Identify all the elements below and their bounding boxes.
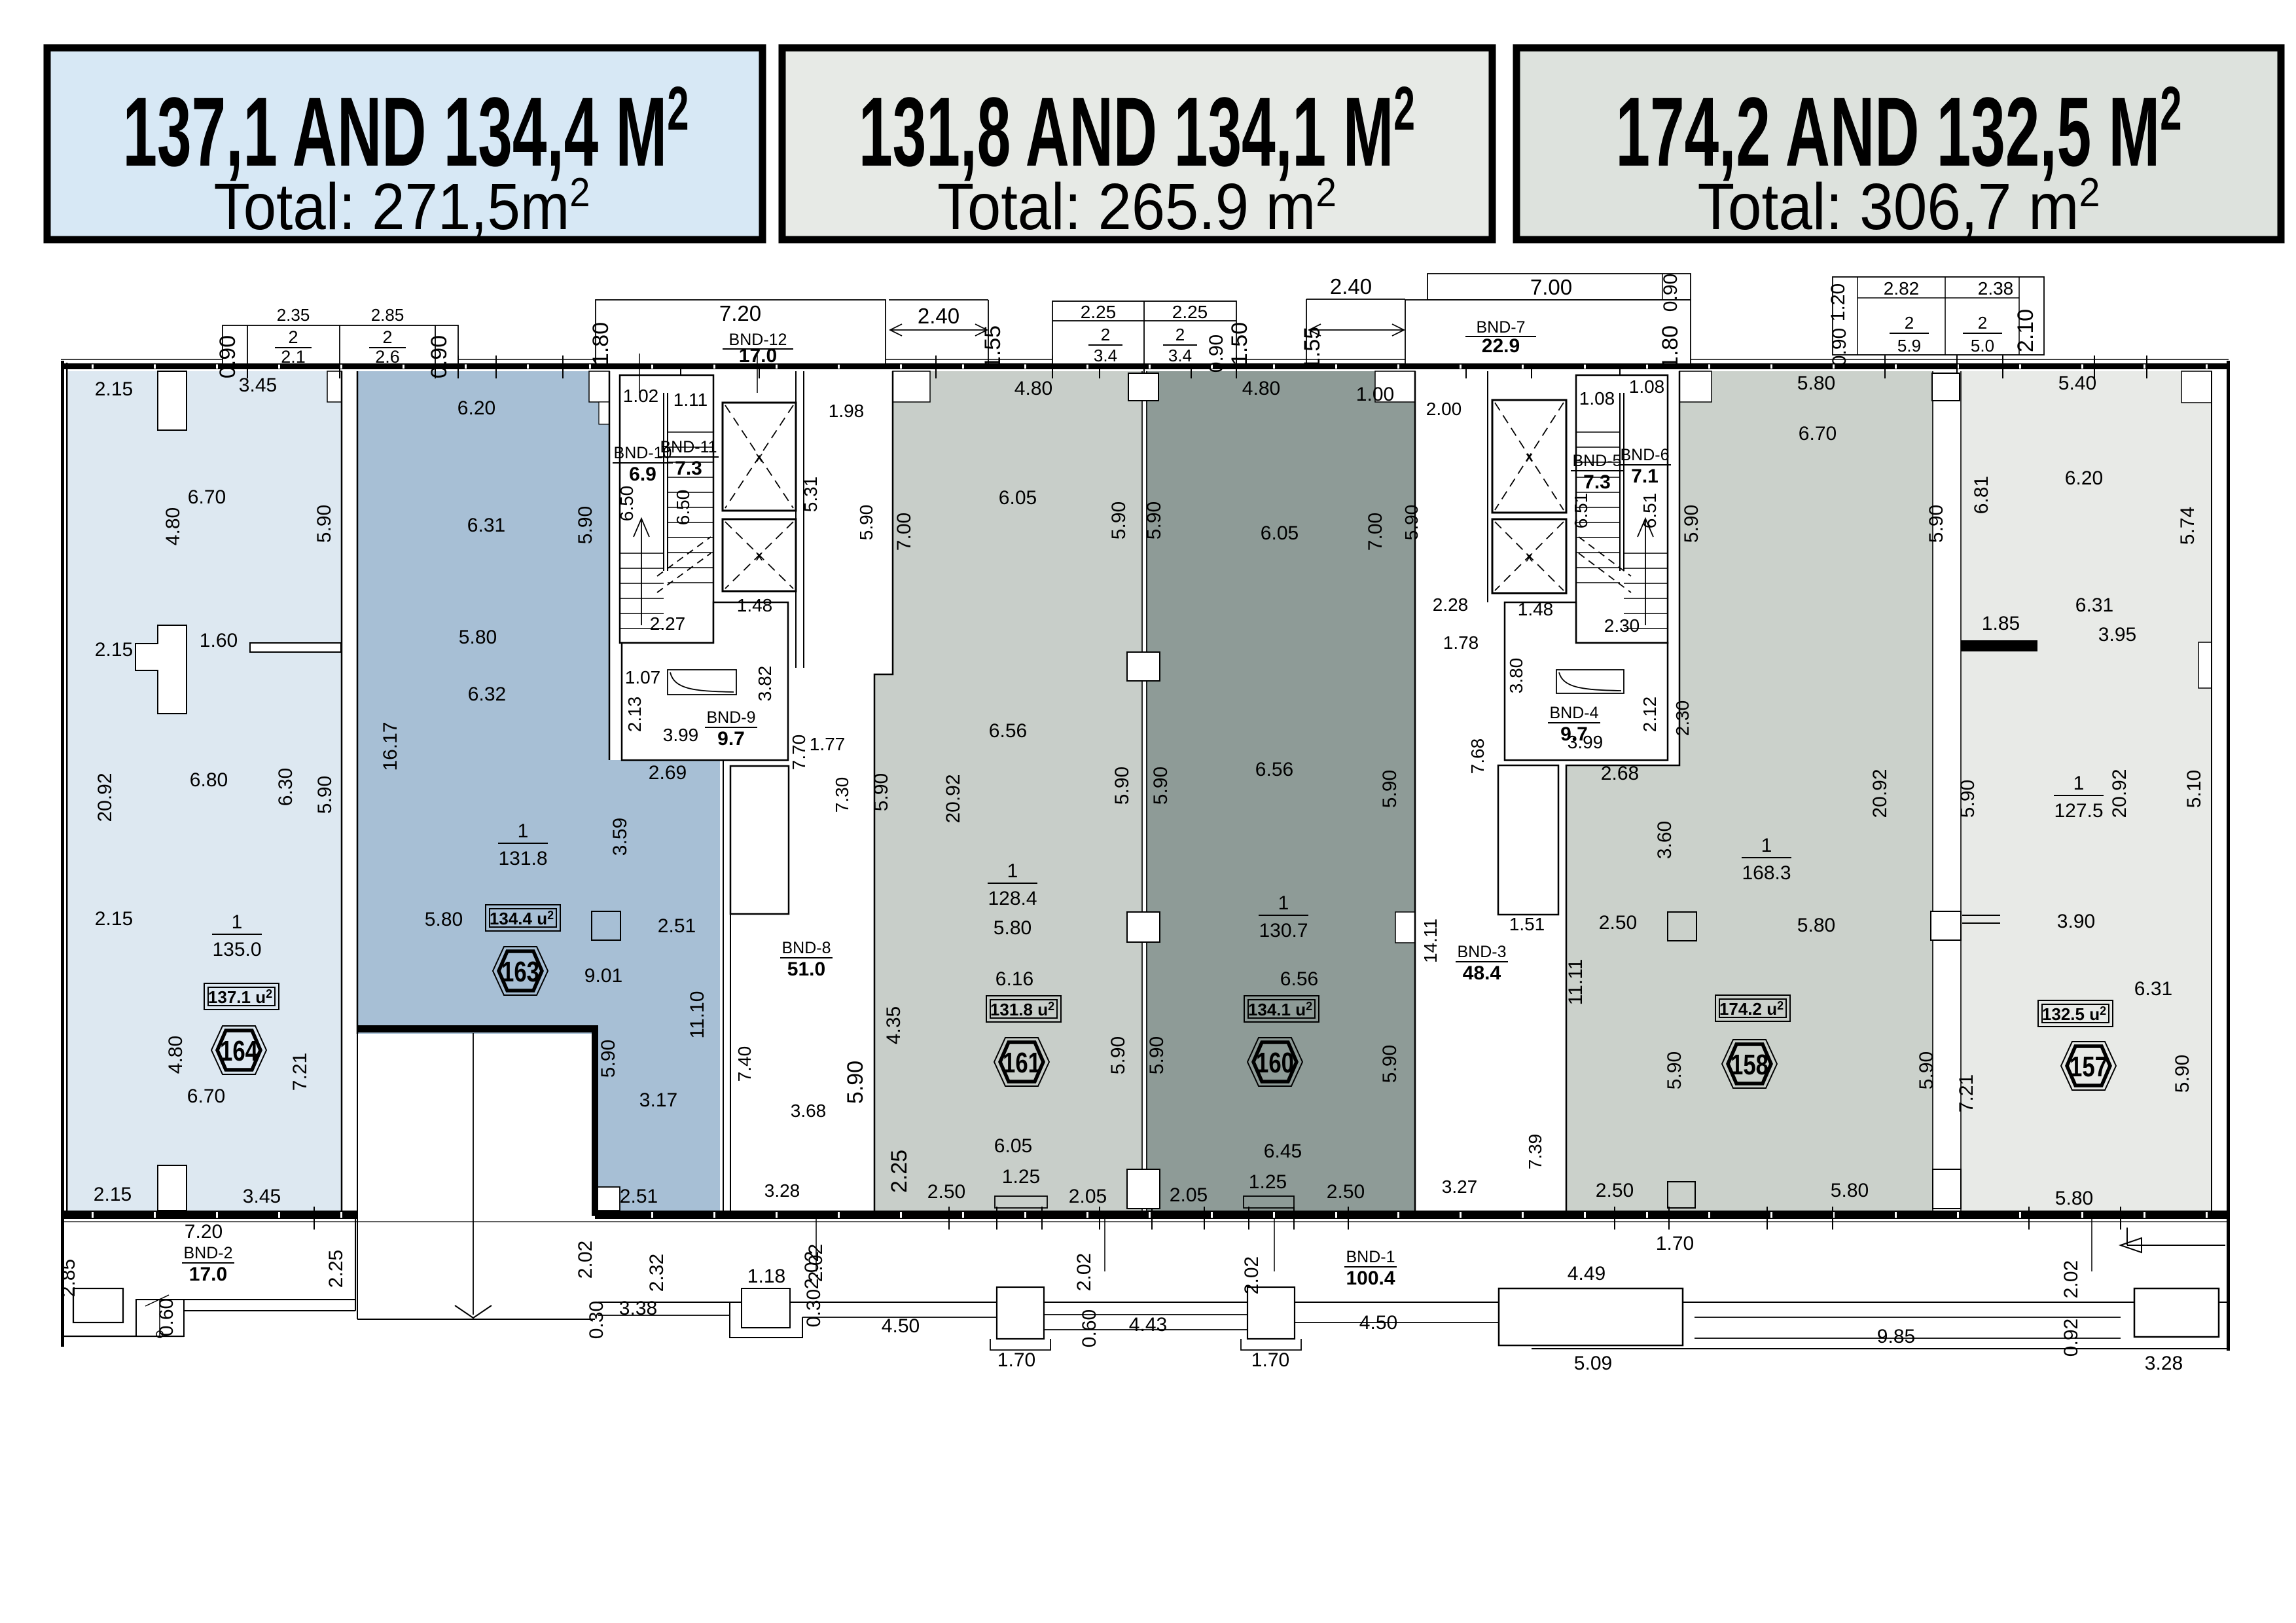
svg-text:1: 1 xyxy=(232,911,243,933)
svg-text:5.90: 5.90 xyxy=(843,1061,868,1104)
svg-text:BND-3: BND-3 xyxy=(1457,943,1506,961)
svg-text:7.00: 7.00 xyxy=(1530,275,1572,299)
svg-text:BND-8: BND-8 xyxy=(781,939,831,957)
svg-text:4.49: 4.49 xyxy=(1568,1263,1605,1285)
svg-text:1.50: 1.50 xyxy=(1227,322,1252,365)
svg-text:0.30: 0.30 xyxy=(803,1289,825,1327)
svg-text:4.80: 4.80 xyxy=(1014,378,1052,399)
svg-text:3.68: 3.68 xyxy=(791,1101,827,1121)
svg-text:9.01: 9.01 xyxy=(584,965,622,987)
svg-text:3.45: 3.45 xyxy=(239,374,277,396)
svg-text:1: 1 xyxy=(2073,773,2085,794)
svg-text:158: 158 xyxy=(1731,1049,1768,1081)
svg-text:6.56: 6.56 xyxy=(989,720,1027,742)
svg-text:5.31: 5.31 xyxy=(800,477,821,513)
svg-text:3.4: 3.4 xyxy=(1094,346,1117,365)
svg-text:2.1: 2.1 xyxy=(281,347,306,367)
svg-text:5.90: 5.90 xyxy=(1681,505,1702,543)
svg-text:1.08: 1.08 xyxy=(1629,376,1665,397)
svg-text:2.35: 2.35 xyxy=(277,305,310,325)
svg-text:1.02: 1.02 xyxy=(623,386,659,406)
svg-text:130.7: 130.7 xyxy=(1259,920,1308,941)
svg-text:174.2 u2: 174.2 u2 xyxy=(1719,999,1784,1019)
svg-text:1.51: 1.51 xyxy=(1509,914,1545,934)
svg-text:16.17: 16.17 xyxy=(380,721,401,771)
svg-text:5.90: 5.90 xyxy=(1111,767,1133,805)
svg-text:2.25: 2.25 xyxy=(1172,302,1208,322)
svg-text:2: 2 xyxy=(1905,313,1914,333)
svg-text:6.05: 6.05 xyxy=(999,487,1037,509)
svg-text:6.80: 6.80 xyxy=(190,769,228,791)
svg-text:BND-7: BND-7 xyxy=(1476,318,1525,337)
svg-text:6.56: 6.56 xyxy=(1280,968,1318,990)
svg-text:5.90: 5.90 xyxy=(856,505,876,541)
svg-text:5.80: 5.80 xyxy=(1797,373,1835,394)
svg-text:6.81: 6.81 xyxy=(1971,476,1992,514)
svg-text:5.90: 5.90 xyxy=(1379,1045,1401,1083)
svg-text:2.40: 2.40 xyxy=(1330,274,1372,299)
svg-text:4.80: 4.80 xyxy=(165,1036,187,1074)
svg-text:1.55: 1.55 xyxy=(1300,327,1325,370)
svg-text:6.20: 6.20 xyxy=(2065,467,2103,489)
svg-text:0.90: 0.90 xyxy=(427,335,452,378)
svg-text:3.60: 3.60 xyxy=(1654,821,1676,859)
svg-text:1.25: 1.25 xyxy=(1249,1171,1287,1193)
svg-text:2: 2 xyxy=(382,327,392,347)
svg-text:2.00: 2.00 xyxy=(1426,399,1462,419)
svg-text:1.98: 1.98 xyxy=(829,401,865,421)
svg-text:132.5 u2: 132.5 u2 xyxy=(2042,1004,2106,1024)
svg-text:2.40: 2.40 xyxy=(918,304,960,328)
svg-text:7.39: 7.39 xyxy=(1525,1134,1545,1170)
svg-text:134.1 u2: 134.1 u2 xyxy=(1248,1000,1312,1019)
svg-text:Total: 265.9 m2: Total: 265.9 m2 xyxy=(937,170,1336,244)
svg-text:7.00: 7.00 xyxy=(893,513,915,551)
svg-text:14.11: 14.11 xyxy=(1420,919,1441,963)
svg-text:5.09: 5.09 xyxy=(1574,1353,1612,1374)
svg-text:5.90: 5.90 xyxy=(575,506,596,544)
svg-text:9.85: 9.85 xyxy=(1877,1326,1915,1347)
svg-text:7.21: 7.21 xyxy=(1956,1074,1977,1112)
svg-text:5.9: 5.9 xyxy=(1897,336,1921,356)
svg-text:134.4 u2: 134.4 u2 xyxy=(490,909,554,928)
svg-text:6.20: 6.20 xyxy=(457,397,495,419)
svg-text:0.30: 0.30 xyxy=(586,1301,607,1339)
svg-text:1.48: 1.48 xyxy=(1518,599,1554,619)
svg-text:5.90: 5.90 xyxy=(2172,1055,2193,1093)
svg-text:2.85: 2.85 xyxy=(371,305,404,325)
svg-text:6.50: 6.50 xyxy=(617,486,637,522)
svg-text:2: 2 xyxy=(1175,325,1185,344)
svg-text:5.80: 5.80 xyxy=(1831,1180,1869,1201)
svg-text:1: 1 xyxy=(1278,892,1289,914)
svg-text:2.68: 2.68 xyxy=(1601,763,1639,784)
svg-text:2.12: 2.12 xyxy=(1640,697,1660,733)
svg-text:2.15: 2.15 xyxy=(94,1184,132,1205)
svg-text:0.92: 0.92 xyxy=(2060,1319,2082,1357)
svg-text:2.02: 2.02 xyxy=(1241,1256,1263,1294)
svg-text:11.11: 11.11 xyxy=(1565,959,1587,1006)
svg-text:5.74: 5.74 xyxy=(2177,507,2198,545)
svg-text:131.8: 131.8 xyxy=(498,848,547,869)
svg-text:3.28: 3.28 xyxy=(2145,1353,2183,1374)
svg-text:BND-1: BND-1 xyxy=(1346,1248,1395,1266)
svg-text:1.11: 1.11 xyxy=(673,390,708,410)
svg-text:131.8 u2: 131.8 u2 xyxy=(990,1000,1054,1019)
svg-text:164: 164 xyxy=(220,1035,258,1067)
svg-text:1.48: 1.48 xyxy=(737,595,773,615)
svg-text:2.02: 2.02 xyxy=(2060,1260,2082,1298)
svg-text:6.70: 6.70 xyxy=(188,486,226,508)
svg-text:137.1 u2: 137.1 u2 xyxy=(208,987,272,1007)
svg-text:5.40: 5.40 xyxy=(2058,373,2096,394)
svg-text:1.08: 1.08 xyxy=(1579,388,1615,409)
svg-text:5.90: 5.90 xyxy=(314,776,336,814)
svg-text:2.15: 2.15 xyxy=(95,908,133,930)
svg-text:3.17: 3.17 xyxy=(639,1089,677,1111)
svg-text:3.59: 3.59 xyxy=(609,818,631,856)
svg-text:2: 2 xyxy=(288,327,298,347)
svg-text:2.30: 2.30 xyxy=(1672,701,1693,737)
svg-text:168.3: 168.3 xyxy=(1742,862,1791,884)
svg-text:157: 157 xyxy=(2070,1051,2108,1083)
svg-text:2.25: 2.25 xyxy=(1081,302,1117,322)
svg-text:3.90: 3.90 xyxy=(2057,911,2095,932)
svg-text:17.0: 17.0 xyxy=(739,345,777,367)
svg-text:2.38: 2.38 xyxy=(1978,278,2014,299)
svg-text:2.15: 2.15 xyxy=(95,639,133,661)
svg-text:4.50: 4.50 xyxy=(1359,1312,1397,1334)
svg-text:6.32: 6.32 xyxy=(468,684,506,705)
svg-text:128.4: 128.4 xyxy=(988,888,1037,909)
svg-text:4.50: 4.50 xyxy=(882,1315,920,1337)
svg-text:2.13: 2.13 xyxy=(624,697,645,733)
svg-text:x: x xyxy=(1526,549,1533,565)
svg-text:2.25: 2.25 xyxy=(325,1250,347,1288)
svg-text:5.80: 5.80 xyxy=(994,917,1031,939)
svg-text:2: 2 xyxy=(1101,325,1110,344)
svg-text:0.60: 0.60 xyxy=(1079,1309,1100,1347)
svg-text:2.32: 2.32 xyxy=(646,1254,668,1292)
svg-text:Total: 306,7 m2: Total: 306,7 m2 xyxy=(1698,170,2100,244)
svg-text:5.80: 5.80 xyxy=(459,627,497,648)
svg-text:5.80: 5.80 xyxy=(2055,1188,2093,1209)
svg-text:7.1: 7.1 xyxy=(1631,465,1659,487)
svg-text:0.60: 0.60 xyxy=(156,1298,177,1336)
svg-text:5.0: 5.0 xyxy=(1971,336,1994,356)
svg-text:100.4: 100.4 xyxy=(1346,1267,1395,1289)
svg-text:6.31: 6.31 xyxy=(2134,978,2172,1000)
svg-text:2.27: 2.27 xyxy=(650,613,686,634)
svg-text:4.35: 4.35 xyxy=(883,1006,905,1044)
svg-text:7.30: 7.30 xyxy=(832,777,852,813)
svg-text:4.80: 4.80 xyxy=(1242,378,1280,399)
svg-text:1.85: 1.85 xyxy=(1982,613,2020,634)
svg-text:20.92: 20.92 xyxy=(942,774,964,823)
svg-text:1.80: 1.80 xyxy=(1658,325,1683,369)
svg-text:1.80: 1.80 xyxy=(588,322,613,365)
svg-text:2.10: 2.10 xyxy=(2013,309,2038,352)
svg-text:6.51: 6.51 xyxy=(1640,493,1660,529)
svg-text:7.3: 7.3 xyxy=(1583,471,1611,493)
svg-text:5.90: 5.90 xyxy=(870,773,892,811)
svg-text:6.9: 6.9 xyxy=(629,464,656,485)
svg-text:BND-6: BND-6 xyxy=(1620,446,1669,464)
svg-text:1.77: 1.77 xyxy=(810,734,846,754)
svg-text:3.4: 3.4 xyxy=(1168,346,1192,365)
svg-text:6.05: 6.05 xyxy=(1261,522,1299,544)
svg-text:0.90: 0.90 xyxy=(1206,335,1227,373)
svg-text:161: 161 xyxy=(1003,1047,1041,1079)
svg-text:2.50: 2.50 xyxy=(927,1181,965,1203)
svg-text:7.21: 7.21 xyxy=(289,1053,311,1091)
svg-text:1.70: 1.70 xyxy=(1656,1233,1694,1254)
svg-text:7.68: 7.68 xyxy=(1467,739,1488,775)
svg-text:0.90: 0.90 xyxy=(215,335,240,378)
svg-text:2.02: 2.02 xyxy=(575,1241,596,1279)
svg-text:127.5: 127.5 xyxy=(2054,800,2103,822)
svg-text:7.20: 7.20 xyxy=(185,1221,223,1243)
svg-text:3.99: 3.99 xyxy=(663,725,699,745)
svg-text:11.10: 11.10 xyxy=(687,991,708,1039)
svg-text:5.90: 5.90 xyxy=(1379,770,1401,808)
svg-text:5.90: 5.90 xyxy=(1107,1036,1129,1074)
svg-text:1.78: 1.78 xyxy=(1443,632,1479,653)
svg-text:2.05: 2.05 xyxy=(1069,1186,1107,1207)
svg-text:1.07: 1.07 xyxy=(625,667,661,687)
svg-text:160: 160 xyxy=(1256,1047,1294,1079)
svg-text:0.90: 0.90 xyxy=(1660,274,1681,312)
svg-text:5.10: 5.10 xyxy=(2183,770,2205,808)
svg-text:2.50: 2.50 xyxy=(1596,1180,1634,1201)
svg-text:2.69: 2.69 xyxy=(649,762,687,784)
svg-text:3.28: 3.28 xyxy=(764,1180,800,1201)
svg-text:7.00: 7.00 xyxy=(1365,513,1386,551)
svg-text:x: x xyxy=(1526,448,1533,465)
svg-text:9.7: 9.7 xyxy=(717,728,745,750)
svg-text:2.50: 2.50 xyxy=(1599,912,1637,934)
svg-text:Total: 271,5m2: Total: 271,5m2 xyxy=(214,170,590,244)
svg-text:6.70: 6.70 xyxy=(1799,423,1837,445)
svg-text:1.25: 1.25 xyxy=(1002,1166,1040,1188)
svg-text:5.90: 5.90 xyxy=(1664,1051,1685,1089)
svg-text:1: 1 xyxy=(1761,835,1772,856)
svg-text:6.31: 6.31 xyxy=(2075,594,2113,616)
svg-text:5.90: 5.90 xyxy=(1401,505,1422,541)
svg-text:7.70: 7.70 xyxy=(789,735,809,771)
svg-text:3.80: 3.80 xyxy=(1506,658,1526,694)
svg-text:6.45: 6.45 xyxy=(1264,1140,1302,1162)
svg-text:4.80: 4.80 xyxy=(162,507,184,545)
svg-text:2.51: 2.51 xyxy=(620,1186,658,1207)
svg-text:5.90: 5.90 xyxy=(1143,501,1165,539)
svg-text:3.38: 3.38 xyxy=(619,1298,657,1319)
svg-text:5.80: 5.80 xyxy=(425,909,463,930)
svg-text:6.16: 6.16 xyxy=(996,968,1033,990)
svg-text:51.0: 51.0 xyxy=(787,958,825,980)
svg-text:6.05: 6.05 xyxy=(994,1135,1032,1157)
svg-text:3.95: 3.95 xyxy=(2098,624,2136,646)
svg-text:2.51: 2.51 xyxy=(658,915,696,937)
svg-text:5.90: 5.90 xyxy=(598,1040,619,1078)
svg-text:1: 1 xyxy=(1007,860,1018,882)
svg-text:163: 163 xyxy=(501,956,539,988)
svg-text:1.70: 1.70 xyxy=(1251,1349,1289,1371)
svg-text:2.05: 2.05 xyxy=(1170,1184,1208,1206)
svg-text:BND-2: BND-2 xyxy=(183,1244,232,1262)
svg-text:5.90: 5.90 xyxy=(1957,780,1979,818)
svg-text:2.28: 2.28 xyxy=(1433,594,1469,615)
svg-text:1: 1 xyxy=(518,820,529,842)
svg-text:2.02: 2.02 xyxy=(1073,1253,1095,1291)
svg-text:135.0: 135.0 xyxy=(212,939,261,960)
svg-text:1.60: 1.60 xyxy=(200,630,238,651)
svg-text:48.4: 48.4 xyxy=(1463,962,1501,984)
svg-text:3.27: 3.27 xyxy=(1442,1176,1478,1197)
svg-text:2.6: 2.6 xyxy=(375,347,400,367)
svg-text:5.90: 5.90 xyxy=(1146,1036,1168,1074)
svg-text:2.85: 2.85 xyxy=(58,1259,79,1297)
svg-text:5.90: 5.90 xyxy=(1108,501,1130,539)
svg-text:5.80: 5.80 xyxy=(1797,915,1835,936)
svg-text:1.00: 1.00 xyxy=(1356,384,1394,405)
svg-text:20.92: 20.92 xyxy=(94,773,116,822)
svg-text:1.20: 1.20 xyxy=(1827,283,1849,321)
svg-text:22.9: 22.9 xyxy=(1482,335,1520,357)
svg-text:6.31: 6.31 xyxy=(467,515,505,536)
svg-text:6.51: 6.51 xyxy=(1571,493,1591,529)
svg-text:1.18: 1.18 xyxy=(747,1266,785,1287)
svg-text:7.40: 7.40 xyxy=(734,1046,755,1082)
svg-text:2.30: 2.30 xyxy=(1604,615,1640,636)
svg-text:2.50: 2.50 xyxy=(1327,1181,1365,1203)
svg-text:6.56: 6.56 xyxy=(1255,759,1293,780)
svg-text:x: x xyxy=(756,449,763,465)
svg-text:3.45: 3.45 xyxy=(243,1186,281,1207)
svg-text:7.20: 7.20 xyxy=(719,301,761,325)
svg-text:BND-11: BND-11 xyxy=(660,438,717,456)
svg-text:3.82: 3.82 xyxy=(755,666,775,702)
svg-text:BND-4: BND-4 xyxy=(1549,704,1598,722)
svg-text:6.50: 6.50 xyxy=(673,490,693,526)
svg-text:6.30: 6.30 xyxy=(275,768,296,806)
svg-text:20.92: 20.92 xyxy=(1869,769,1891,818)
svg-text:1.55: 1.55 xyxy=(980,325,1005,369)
svg-text:BND-9: BND-9 xyxy=(706,708,755,727)
svg-text:BND-5: BND-5 xyxy=(1572,452,1621,470)
svg-text:x: x xyxy=(756,547,763,564)
svg-text:6.70: 6.70 xyxy=(187,1085,225,1107)
svg-text:2: 2 xyxy=(1978,313,1987,333)
svg-text:17.0: 17.0 xyxy=(189,1264,227,1285)
svg-text:7.3: 7.3 xyxy=(675,458,702,479)
svg-text:5.90: 5.90 xyxy=(314,505,335,543)
svg-text:4.43: 4.43 xyxy=(1129,1314,1167,1336)
svg-text:2.15: 2.15 xyxy=(95,378,133,400)
svg-text:5.90: 5.90 xyxy=(1926,505,1947,543)
svg-text:0.90: 0.90 xyxy=(1829,328,1850,366)
svg-text:5.90: 5.90 xyxy=(1150,767,1172,805)
svg-text:2.25: 2.25 xyxy=(887,1150,912,1193)
svg-text:1.70: 1.70 xyxy=(997,1349,1035,1371)
svg-text:5.90: 5.90 xyxy=(1916,1051,1937,1089)
svg-text:9.7: 9.7 xyxy=(1560,723,1588,745)
svg-text:2.82: 2.82 xyxy=(1884,278,1920,299)
svg-text:2.02: 2.02 xyxy=(805,1244,827,1282)
svg-text:20.92: 20.92 xyxy=(2109,769,2130,818)
